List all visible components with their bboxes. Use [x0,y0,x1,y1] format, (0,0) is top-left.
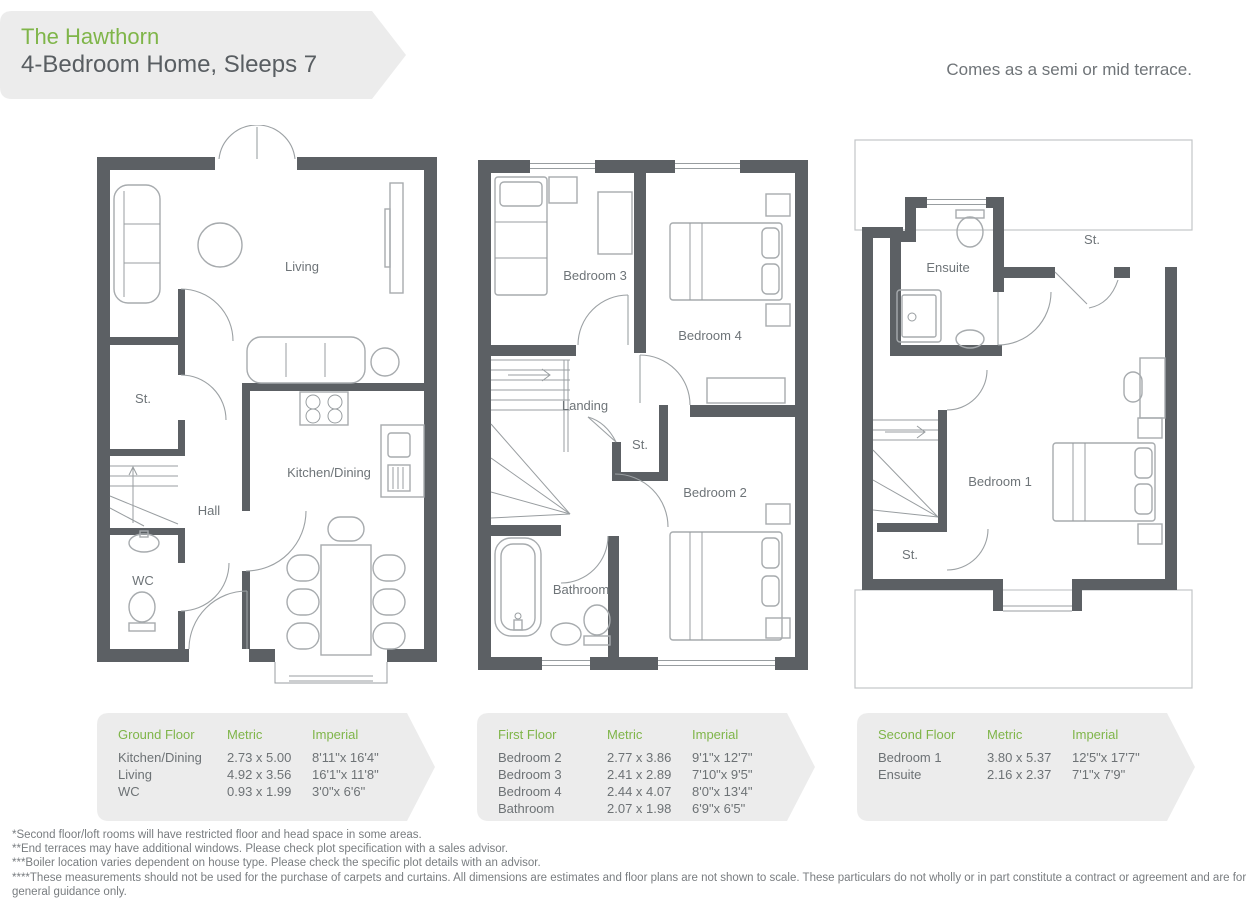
table-title: Ground Floor [118,727,195,742]
room-label-bedroom4: Bedroom 4 [678,328,742,343]
desk [1140,358,1165,418]
double-bed [670,223,782,300]
stairs [873,420,938,517]
metric-header: Metric [227,727,262,742]
ground-furniture [110,183,424,655]
desk [598,192,632,254]
table-row: Kitchen/Dining2.73 x 5.008'11"x 16'4" [118,750,435,767]
footnotes: *Second floor/loft rooms will have restr… [12,828,1260,899]
second-floor-table: Second Floor Metric Imperial Bedroom 13.… [857,713,1195,821]
room-label-living: Living [285,259,319,274]
terrace-note: Comes as a semi or mid terrace. [946,60,1192,80]
room-label-landing: Landing [562,398,608,413]
table-row: Bedroom 32.41 x 2.897'10"x 9'5" [498,767,815,784]
metric-header: Metric [607,727,642,742]
side-table [371,348,399,376]
single-bed [495,177,547,295]
footnote-3: ***Boiler location varies dependent on h… [12,856,1260,870]
page-title: The Hawthorn [21,24,406,50]
room-label-st-top: St. [1084,232,1100,247]
room-label-kitchen: Kitchen/Dining [287,465,371,480]
footnote-4: ****These measurements should not be use… [12,871,1260,899]
table-row: Bedroom 13.80 x 5.3712'5"x 17'7" [878,750,1195,767]
dining-table [321,545,371,655]
wardrobe [707,378,785,403]
room-label-bedroom1: Bedroom 1 [968,474,1032,489]
room-label-st: St. [135,391,151,406]
coffee-table [198,223,242,267]
table-row: Bathroom2.07 x 1.986'9"x 6'5" [498,801,815,818]
room-label-ensuite: Ensuite [926,260,969,275]
basin [551,623,581,645]
room-label-bathroom: Bathroom [553,582,609,597]
second-furniture [873,210,1165,544]
ground-doors-windows [181,125,387,683]
room-label-bedroom3: Bedroom 3 [563,268,627,283]
room-label-wc: WC [132,573,154,588]
metric-header: Metric [987,727,1022,742]
sofa [247,337,365,383]
stairs [491,360,570,518]
imperial-header: Imperial [692,727,738,742]
room-label-st: St. [632,437,648,452]
shower [897,290,941,342]
table-title: First Floor [498,727,557,742]
first-walls [478,160,808,670]
tv-unit [390,183,403,293]
header-banner: The Hawthorn 4-Bedroom Home, Sleeps 7 [0,11,406,99]
loft-space-bottom [855,590,1192,688]
footnote-2: **End terraces may have additional windo… [12,842,1260,856]
stairs [110,466,178,526]
room-label-bedroom2: Bedroom 2 [683,485,747,500]
toilet [129,592,155,622]
first-labels: Bedroom 3 Bedroom 4 Landing St. Bedroom … [553,268,747,597]
page-subtitle: 4-Bedroom Home, Sleeps 7 [21,50,406,80]
second-floor-plan: Ensuite St. Bedroom 1 St. [850,132,1195,690]
imperial-header: Imperial [312,727,358,742]
imperial-header: Imperial [1072,727,1118,742]
ground-floor-plan: Living St. Hall WC Kitchen/Dining [97,125,437,695]
first-floor-table: First Floor Metric Imperial Bedroom 22.7… [477,713,815,821]
table-row: Bedroom 42.44 x 4.078'0"x 13'4" [498,784,815,801]
table-row: Bedroom 22.77 x 3.869'1"x 12'7" [498,750,815,767]
first-floor-plan: Bedroom 3 Bedroom 4 Landing St. Bedroom … [478,152,808,677]
table-row: Ensuite2.16 x 2.377'1"x 7'9" [878,767,1195,784]
room-label-hall: Hall [198,503,221,518]
toilet [584,605,610,635]
table-row: WC0.93 x 1.993'0"x 6'6" [118,784,435,801]
table-title: Second Floor [878,727,955,742]
room-label-st-bottom: St. [902,547,918,562]
footnote-1: *Second floor/loft rooms will have restr… [12,828,1260,842]
ground-labels: Living St. Hall WC Kitchen/Dining [132,259,371,588]
double-bed [1053,443,1155,521]
double-bed [670,532,782,640]
ground-floor-table: Ground Floor Metric Imperial Kitchen/Din… [97,713,435,821]
table-row: Living4.92 x 3.5616'1"x 11'8" [118,767,435,784]
